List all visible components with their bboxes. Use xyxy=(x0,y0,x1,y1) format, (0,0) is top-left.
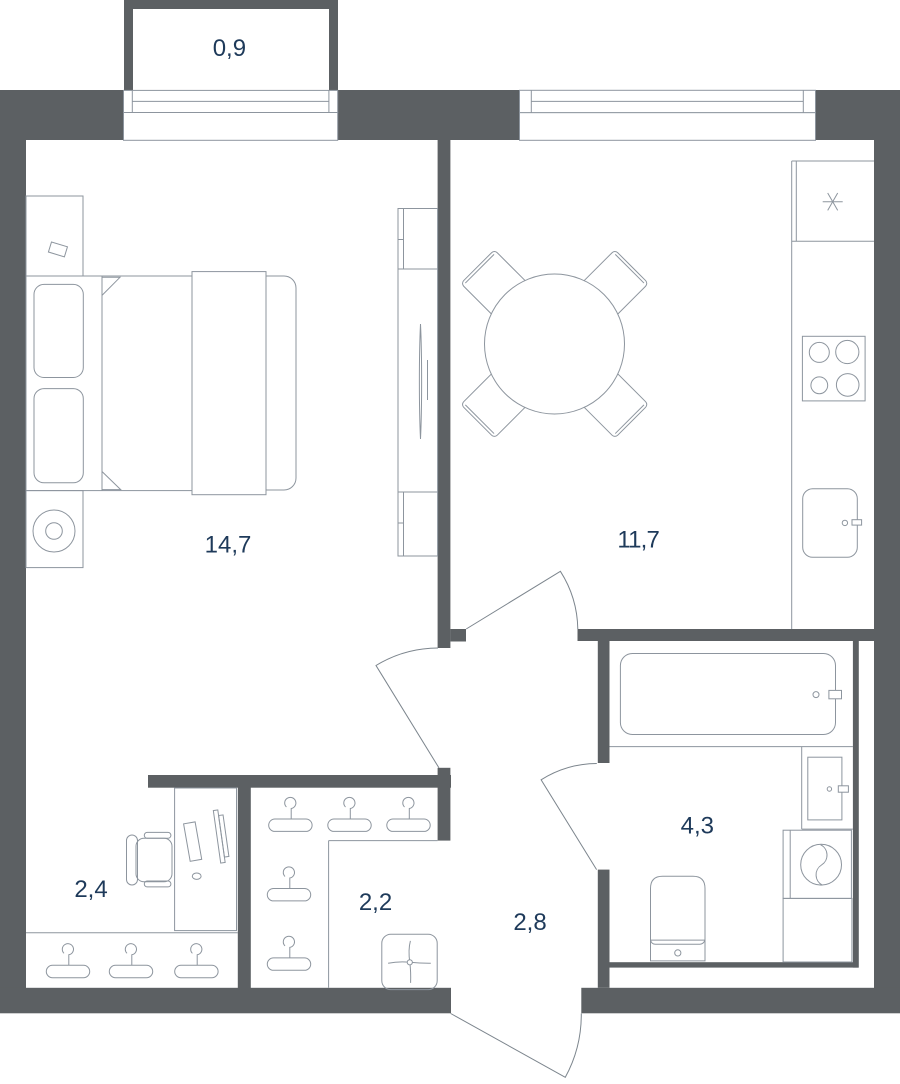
svg-text:0,9: 0,9 xyxy=(213,35,246,62)
svg-text:2,8: 2,8 xyxy=(513,909,546,936)
svg-text:11,7: 11,7 xyxy=(617,527,659,554)
svg-text:14,7: 14,7 xyxy=(205,532,252,559)
svg-text:4,3: 4,3 xyxy=(681,812,714,839)
svg-text:2,2: 2,2 xyxy=(359,889,392,916)
svg-text:2,4: 2,4 xyxy=(74,876,107,903)
